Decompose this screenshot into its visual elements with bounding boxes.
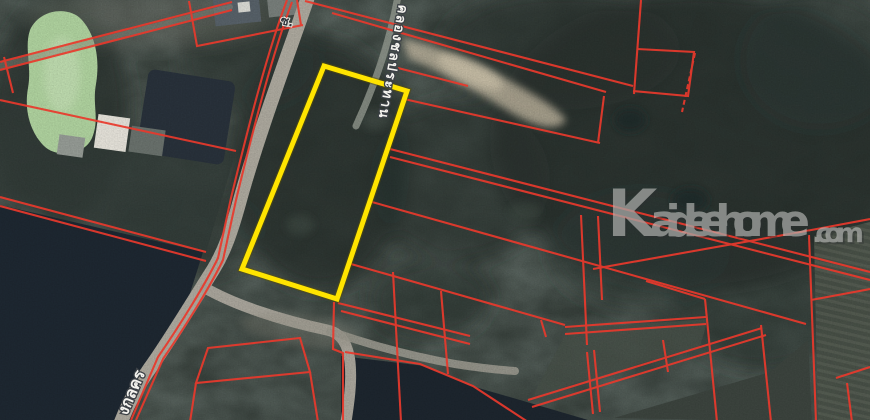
watermark-tld: .com (812, 218, 864, 249)
satellite-map-image: คลองชลประทาน งกลคร ซ. K aideehome .com K… (0, 0, 870, 420)
map-canvas: คลองชลประทาน งกลคร ซ. K aideehome .com K… (0, 0, 870, 420)
watermark-name: aideehome (650, 196, 810, 247)
